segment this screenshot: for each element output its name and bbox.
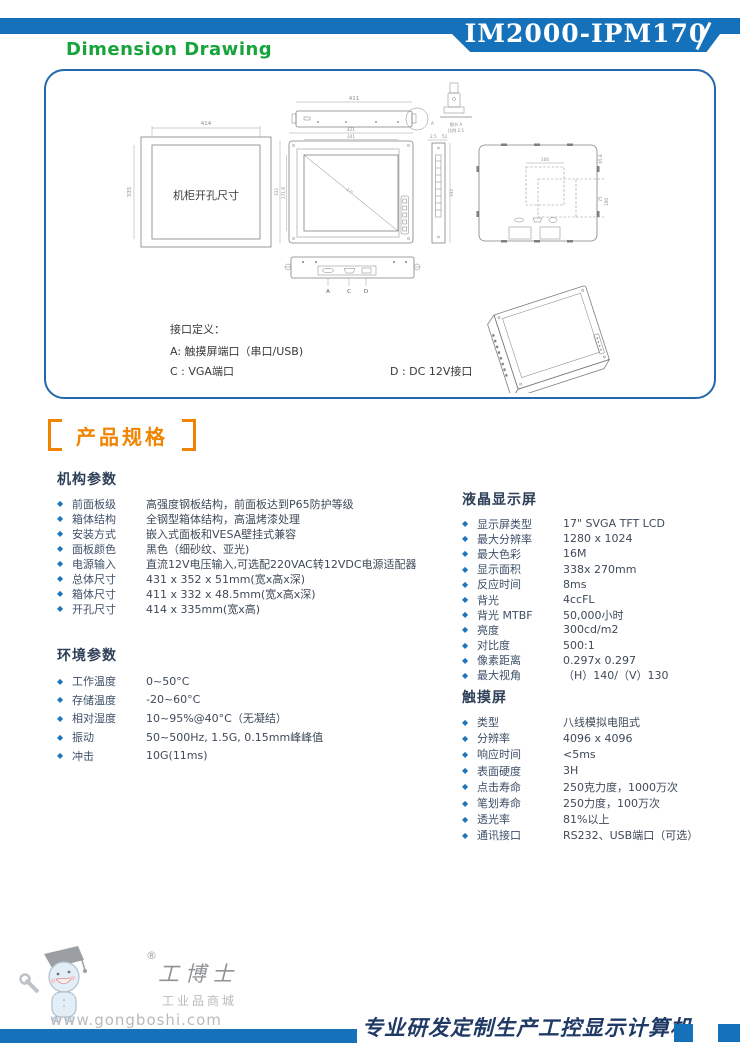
footer-slogan: 专业研发定制生产工控显示计算机 (362, 1012, 692, 1042)
dim-vesa-width: 100 (541, 157, 549, 162)
spec-group-title: 触摸屏 (462, 687, 740, 707)
diamond-bullet-icon: ◆ (57, 559, 65, 568)
spec-label: 对比度 (477, 637, 563, 653)
spec-row: ◆ 背光 4ccFL (462, 592, 740, 607)
diamond-bullet-icon: ◆ (462, 831, 470, 840)
spec-label: 安装方式 (72, 526, 146, 542)
spec-value: 250力度，100万次 (563, 795, 660, 811)
spec-label: 通讯接口 (477, 827, 563, 843)
dim-vesa-height: 75 (598, 196, 603, 202)
spec-value: 八线模拟电阻式 (563, 714, 640, 730)
spec-group-environment: 环境参数 ◆ 工作温度 0~50°C ◆ 存储温度 -20~60°C ◆ 相对湿… (57, 645, 457, 765)
detail-marker: A (431, 121, 434, 126)
dim-screen-width: 341 (347, 134, 355, 139)
logo-url: www.gongboshi.com (50, 1011, 222, 1029)
logo-tagline: 工业品商城 (162, 992, 237, 1009)
spec-group-mechanical: 机构参数 ◆ 前面板级 高强度钢板结构，前面板达到P65防护等级 ◆ 箱体结构 … (57, 469, 457, 616)
spec-label: 像素距离 (477, 652, 563, 668)
spec-label: 显示面积 (477, 561, 563, 577)
spec-label: 工作温度 (72, 673, 146, 689)
spec-label: 点击寿命 (477, 779, 563, 795)
interface-item-c: C : VGA端口 (170, 363, 234, 379)
spec-value: 嵌入式面板和VESA壁挂式兼容 (146, 526, 296, 542)
spec-row: ◆ 前面板级 高强度钢板结构，前面板达到P65防护等级 (57, 496, 457, 511)
dim-front-width: 421 (347, 127, 355, 132)
spec-label: 开孔尺寸 (72, 601, 146, 617)
dim-front-height: 332 (274, 188, 279, 196)
footer-square-decor (674, 1024, 693, 1042)
spec-value: 411 x 332 x 48.5mm(宽x高x深) (146, 586, 316, 602)
dim-side-height: 332 (449, 189, 454, 197)
interface-item-d: D : DC 12V接口 (390, 363, 472, 379)
product-spec-heading: 产品规格 (48, 419, 196, 451)
spec-row: ◆ 通讯接口 RS232、USB端口（可选） (462, 827, 740, 843)
spec-label: 存储温度 (72, 692, 146, 708)
dim-cutout-width: 414 (201, 121, 212, 127)
spec-value: 50~500Hz, 1.5G, 0.15mm峰峰值 (146, 729, 323, 745)
spec-value: 81%以上 (563, 811, 609, 827)
diamond-bullet-icon: ◆ (57, 499, 65, 508)
spec-row: ◆ 分辨率 4096 x 4096 (462, 730, 740, 746)
footer-blue-bar (0, 1029, 357, 1043)
footer-square-decor (718, 1024, 740, 1042)
spec-row: ◆ 响应时间 <5ms (462, 746, 740, 762)
spec-value: 高强度钢板结构，前面板达到P65防护等级 (146, 496, 354, 512)
spec-value: 500:1 (563, 639, 595, 652)
diamond-bullet-icon: ◆ (462, 565, 470, 574)
spec-value: -20~60°C (146, 693, 200, 706)
spec-label: 面板颜色 (72, 541, 146, 557)
interface-item-a: A: 触摸屏端口（串口/USB) (170, 343, 303, 359)
diamond-bullet-icon: ◆ (462, 766, 470, 775)
diamond-bullet-icon: ◆ (462, 519, 470, 528)
dim-screen-height: 171.6 (281, 187, 286, 199)
spec-value: 4ccFL (563, 593, 595, 606)
spec-row: ◆ 点击寿命 250克力度，1000万次 (462, 779, 740, 795)
heading-right-bracket-icon (182, 419, 196, 451)
spec-value: 0~50°C (146, 675, 189, 688)
diamond-bullet-icon: ◆ (462, 549, 470, 558)
spec-value: 1280 x 1024 (563, 532, 633, 545)
spec-group-lcd: 液晶显示屏 ◆ 显示屏类型 17" SVGA TFT LCD ◆ 最大分辨率 1… (462, 489, 740, 683)
diamond-bullet-icon: ◆ (462, 625, 470, 634)
spec-label: 最大视角 (477, 667, 563, 683)
dim-side-thickness: 2.5 (430, 134, 437, 139)
spec-value: RS232、USB端口（可选） (563, 827, 698, 843)
spec-row: ◆ 最大分辨率 1280 x 1024 (462, 531, 740, 546)
diamond-bullet-icon: ◆ (57, 714, 65, 723)
spec-value: 10~95%@40°C（无凝结） (146, 710, 287, 726)
spec-row: ◆ 工作温度 0~50°C (57, 672, 457, 691)
spec-value: 全钢型箱体结构，高温烤漆处理 (146, 511, 300, 527)
rear-view: 100 75 100 65.8 (477, 144, 610, 243)
spec-label: 箱体结构 (72, 511, 146, 527)
spec-row: ◆ 相对湿度 10~95%@40°C（无凝结） (57, 709, 457, 728)
detail-scale: 比例 2:1 (448, 127, 465, 134)
diamond-bullet-icon: ◆ (462, 815, 470, 824)
technical-drawing: 机柜开孔尺寸 414 335 411 A 细节 A (46, 71, 710, 393)
diamond-bullet-icon: ◆ (462, 671, 470, 680)
spec-label: 亮度 (477, 622, 563, 638)
diamond-bullet-icon: ◆ (57, 529, 65, 538)
spec-group-title: 环境参数 (57, 645, 457, 665)
diamond-bullet-icon: ◆ (57, 544, 65, 553)
spec-row: ◆ 类型 八线模拟电阻式 (462, 714, 740, 730)
spec-value: <5ms (563, 748, 596, 761)
model-number: IM2000-IPM170 (465, 19, 708, 51)
spec-row: ◆ 背光 MTBF 50,000小时 (462, 607, 740, 622)
spec-row: ◆ 表面硬度 3H (462, 763, 740, 779)
diamond-bullet-icon: ◆ (462, 656, 470, 665)
spec-row: ◆ 最大色彩 16M (462, 546, 740, 561)
diamond-bullet-icon: ◆ (462, 734, 470, 743)
spec-value: 8ms (563, 578, 586, 591)
spec-label: 最大分辨率 (477, 531, 563, 547)
heading-left-bracket-icon (48, 419, 62, 451)
diamond-bullet-icon: ◆ (57, 514, 65, 523)
spec-label: 冲击 (72, 748, 146, 764)
spec-label: 振动 (72, 729, 146, 745)
diamond-bullet-icon: ◆ (57, 677, 65, 686)
side-view: 2.5 51 332 (427, 134, 454, 243)
dim-top-width: 411 (349, 96, 360, 102)
spec-label: 相对湿度 (72, 710, 146, 726)
spec-label: 前面板级 (72, 496, 146, 512)
spec-label: 背光 MTBF (477, 607, 563, 623)
spec-row: ◆ 反应时间 8ms (462, 577, 740, 592)
spec-label: 类型 (477, 714, 563, 730)
diamond-bullet-icon: ◆ (462, 718, 470, 727)
spec-value: 414 x 335mm(宽x高) (146, 601, 260, 617)
spec-row: ◆ 笔划寿命 250力度，100万次 (462, 795, 740, 811)
spec-row: ◆ 显示屏类型 17" SVGA TFT LCD (462, 516, 740, 531)
diamond-bullet-icon: ◆ (462, 534, 470, 543)
diamond-bullet-icon: ◆ (57, 574, 65, 583)
diamond-bullet-icon: ◆ (57, 733, 65, 742)
bottom-view: A C D (285, 257, 420, 295)
spec-row: ◆ 最大视角 （H）140/（V）130 (462, 668, 740, 683)
diamond-bullet-icon: ◆ (57, 695, 65, 704)
interface-definition-title: 接口定义： (170, 321, 225, 337)
spec-label: 箱体尺寸 (72, 586, 146, 602)
spec-value: 直流12V电压输入,可选配220VAC转12VDC电源适配器 (146, 556, 417, 572)
spec-row: ◆ 冲击 10G(11ms) (57, 746, 457, 765)
spec-value: 10G(11ms) (146, 749, 208, 762)
spec-label: 反应时间 (477, 576, 563, 592)
detail-a-view: 细节 A 比例 2:1 (440, 83, 472, 134)
spec-label: 笔划寿命 (477, 795, 563, 811)
dim-cutout-height: 335 (127, 186, 133, 197)
spec-group-title: 液晶显示屏 (462, 489, 740, 509)
spec-label: 背光 (477, 592, 563, 608)
detail-label: 细节 A (450, 121, 463, 128)
port-label-c: C (347, 289, 351, 295)
spec-row: ◆ 电源输入 直流12V电压输入,可选配220VAC转12VDC电源适配器 (57, 556, 457, 571)
top-view: 411 A (292, 96, 434, 130)
registered-mark: ® (146, 949, 157, 962)
dim-vesa-height2: 100 (604, 198, 609, 206)
spec-value: 50,000小时 (563, 607, 624, 623)
front-view: 17" 421 341 332 171.6 (274, 127, 413, 243)
spec-label: 电源输入 (72, 556, 146, 572)
spec-value: 300cd/m2 (563, 623, 618, 636)
spec-row: ◆ 透光率 81%以上 (462, 811, 740, 827)
spec-value: （H）140/（V）130 (563, 667, 669, 683)
logo-name: 工博士 (158, 958, 239, 988)
spec-value: 3H (563, 764, 578, 777)
spec-row: ◆ 开孔尺寸 414 x 335mm(宽x高) (57, 601, 457, 616)
heading-text: 产品规格 (76, 419, 168, 451)
spec-group-touchscreen: 触摸屏 ◆ 类型 八线模拟电阻式 ◆ 分辨率 4096 x 4096 ◆ 响应时… (462, 687, 740, 844)
port-label-a: A (326, 289, 330, 295)
cutout-label: 机柜开孔尺寸 (173, 188, 239, 202)
diamond-bullet-icon: ◆ (462, 610, 470, 619)
dimension-drawing-panel: 机柜开孔尺寸 414 335 411 A 细节 A (44, 69, 716, 399)
spec-value: 4096 x 4096 (563, 732, 633, 745)
spec-row: ◆ 对比度 500:1 (462, 638, 740, 653)
spec-label: 透光率 (477, 811, 563, 827)
spec-row: ◆ 显示面积 338x 270mm (462, 562, 740, 577)
spec-value: 431 x 352 x 51mm(宽x高x深) (146, 571, 305, 587)
diamond-bullet-icon: ◆ (462, 595, 470, 604)
cutout-view: 机柜开孔尺寸 414 335 (127, 121, 271, 247)
diamond-bullet-icon: ◆ (462, 799, 470, 808)
diamond-bullet-icon: ◆ (462, 782, 470, 791)
spec-row: ◆ 总体尺寸 431 x 352 x 51mm(宽x高x深) (57, 571, 457, 586)
spec-value: 338x 270mm (563, 563, 636, 576)
diamond-bullet-icon: ◆ (462, 750, 470, 759)
diamond-bullet-icon: ◆ (57, 604, 65, 613)
spec-row: ◆ 像素距离 0.297x 0.297 (462, 653, 740, 668)
spec-row: ◆ 存储温度 -20~60°C (57, 691, 457, 710)
isometric-view (485, 285, 611, 393)
spec-label: 响应时间 (477, 746, 563, 762)
spec-value: 16M (563, 547, 587, 560)
dim-side-depth: 51 (442, 134, 448, 139)
diamond-bullet-icon: ◆ (462, 580, 470, 589)
diamond-bullet-icon: ◆ (57, 751, 65, 760)
spec-row: ◆ 安装方式 嵌入式面板和VESA壁挂式兼容 (57, 526, 457, 541)
spec-row: ◆ 箱体结构 全钢型箱体结构，高温烤漆处理 (57, 511, 457, 526)
spec-value: 250克力度，1000万次 (563, 779, 678, 795)
port-label-d: D (364, 289, 368, 295)
spec-row: ◆ 面板颜色 黑色（细砂纹、亚光) (57, 541, 457, 556)
spec-group-title: 机构参数 (57, 469, 457, 489)
spec-row: ◆ 振动 50~500Hz, 1.5G, 0.15mm峰峰值 (57, 728, 457, 747)
spec-value: 黑色（细砂纹、亚光) (146, 541, 249, 557)
spec-label: 显示屏类型 (477, 516, 563, 532)
spec-label: 总体尺寸 (72, 571, 146, 587)
spec-row: ◆ 亮度 300cd/m2 (462, 622, 740, 637)
diamond-bullet-icon: ◆ (462, 641, 470, 650)
model-badge: IM2000-IPM170 (452, 18, 720, 52)
spec-label: 表面硬度 (477, 763, 563, 779)
diamond-bullet-icon: ◆ (57, 589, 65, 598)
page-title: Dimension Drawing (66, 39, 272, 60)
spec-row: ◆ 箱体尺寸 411 x 332 x 48.5mm(宽x高x深) (57, 586, 457, 601)
spec-value: 0.297x 0.297 (563, 654, 636, 667)
dim-diagonal: 17" (345, 187, 354, 195)
dim-rear-edge: 65.8 (598, 154, 603, 164)
spec-label: 分辨率 (477, 730, 563, 746)
spec-label: 最大色彩 (477, 546, 563, 562)
spec-value: 17" SVGA TFT LCD (563, 517, 665, 530)
